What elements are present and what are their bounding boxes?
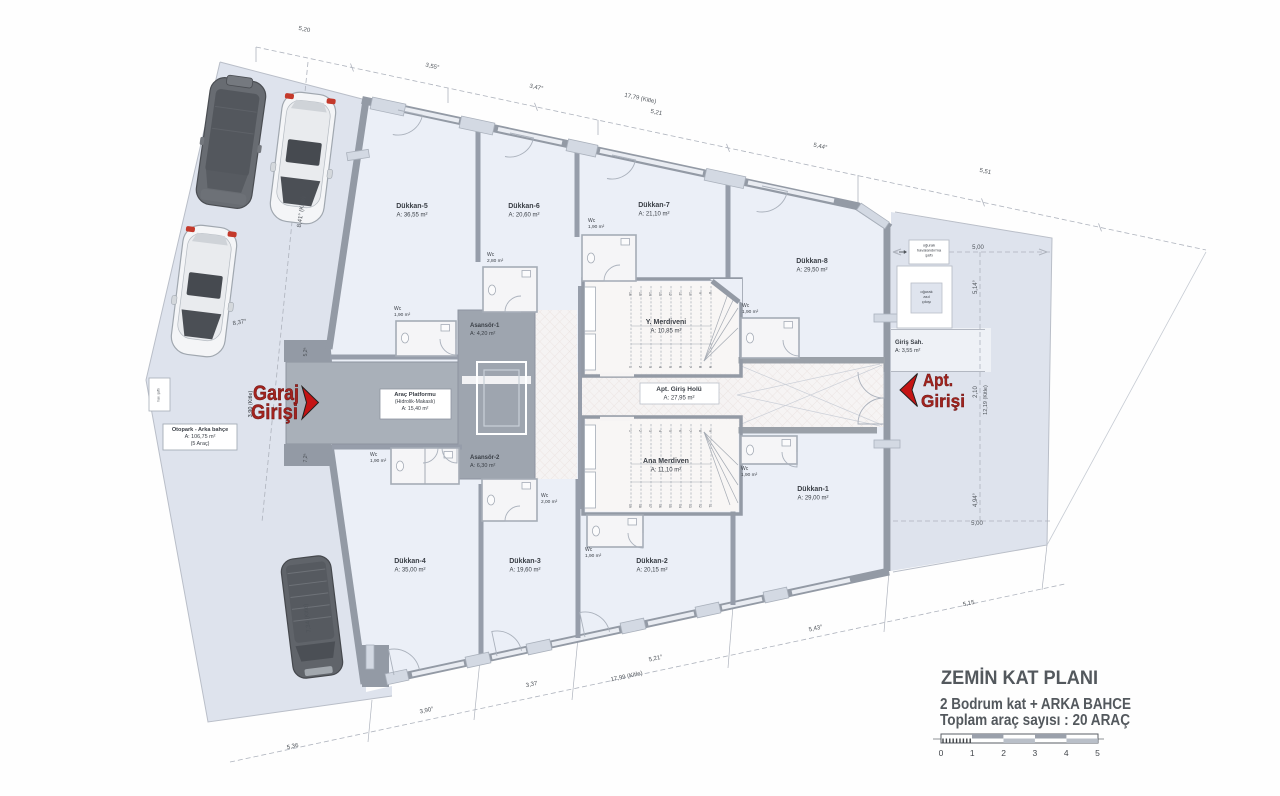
svg-text:hav. şaftı: hav. şaftı [157,388,161,402]
svg-text:Giriş Sah.: Giriş Sah. [895,340,923,346]
svg-text:Wc: Wc [741,466,749,472]
svg-text:(Hidrolik-Makaslı): (Hidrolik-Makaslı) [395,399,436,405]
svg-text:Dükkan-3: Dükkan-3 [509,558,541,565]
svg-text:A: 35,00 m²: A: 35,00 m² [394,568,425,574]
svg-text:4,94°: 4,94° [973,492,979,507]
svg-text:12: 12 [668,292,672,296]
svg-text:A: 11,10 m²: A: 11,10 m² [651,468,682,474]
svg-text:1: 1 [970,748,975,758]
svg-text:8: 8 [708,292,712,294]
svg-text:11: 11 [708,504,712,508]
svg-text:A: 29,50 m²: A: 29,50 m² [796,268,827,274]
svg-text:Wc: Wc [541,493,549,499]
svg-text:A: 36,55 m²: A: 36,55 m² [396,213,427,219]
svg-text:Dükkan-6: Dükkan-6 [508,203,540,210]
svg-text:12,19 (Kitle): 12,19 (Kitle) [983,385,989,415]
svg-text:5,14°: 5,14° [973,279,979,294]
svg-text:9: 9 [708,430,712,432]
svg-text:A: 19,60 m²: A: 19,60 m² [509,568,540,574]
svg-text:9: 9 [698,292,702,294]
svg-text:Ana Merdiven: Ana Merdiven [643,458,689,465]
svg-text:A: 20,15 m²: A: 20,15 m² [636,568,667,574]
svg-text:3: 3 [1033,748,1038,758]
svg-text:Apt.: Apt. [923,370,953,390]
svg-text:15: 15 [638,292,642,296]
svg-text:13: 13 [688,504,692,508]
svg-text:1,90 m²: 1,90 m² [742,309,759,315]
svg-text:10: 10 [688,292,692,296]
svg-text:Araç Platformu: Araç Platformu [394,392,436,398]
svg-text:Wc: Wc [588,218,596,224]
svg-text:A: 6,30 m²: A: 6,30 m² [470,463,496,469]
svg-text:çıkışı: çıkışı [922,299,931,304]
svg-text:A: 20,60 m²: A: 20,60 m² [508,213,539,219]
svg-text:1,90 m²: 1,90 m² [370,458,387,464]
svg-text:1,90 m²: 1,90 m² [741,472,758,478]
svg-text:Wc: Wc [585,547,593,553]
svg-text:7: 7 [688,366,692,368]
svg-text:11: 11 [678,292,682,296]
svg-text:1: 1 [628,366,632,368]
svg-text:2,80 m²: 2,80 m² [487,258,504,264]
svg-text:Dükkan-1: Dükkan-1 [797,486,829,493]
svg-text:Wc: Wc [370,452,378,458]
svg-text:14: 14 [678,504,682,508]
svg-text:Girişi: Girişi [251,401,298,424]
svg-text:2,10: 2,10 [973,386,979,398]
svg-text:A: 15,40 m²: A: 15,40 m² [402,406,429,412]
svg-text:9: 9 [708,366,712,368]
svg-text:Dükkan-4: Dükkan-4 [394,558,426,565]
svg-text:Wc: Wc [487,252,495,258]
svg-text:5,00: 5,00 [972,245,984,251]
svg-text:şaftı: şaftı [925,253,933,258]
svg-text:14: 14 [648,292,652,296]
svg-text:12: 12 [698,504,702,508]
svg-text:4: 4 [1064,748,1069,758]
svg-text:7,2ª: 7,2ª [303,453,309,462]
svg-text:ZEMİN KAT PLANI: ZEMİN KAT PLANI [941,666,1098,689]
svg-text:1,90 m²: 1,90 m² [588,224,605,230]
svg-text:8: 8 [698,366,702,368]
svg-text:3: 3 [648,430,652,432]
svg-text:2 Bodrum kat + ARKA BAHCE: 2 Bodrum kat + ARKA BAHCE [940,696,1131,713]
svg-text:0: 0 [939,748,944,758]
svg-text:4: 4 [658,366,662,368]
svg-text:Asansör-2: Asansör-2 [470,455,500,461]
svg-text:Wc: Wc [394,306,402,312]
svg-text:A: 10,85 m²: A: 10,85 m² [650,329,681,335]
svg-text:A: 3,55 m²: A: 3,55 m² [895,348,921,354]
svg-text:4: 4 [658,430,662,432]
svg-text:A: 27,95 m²: A: 27,95 m² [663,396,694,402]
svg-text:18: 18 [638,504,642,508]
svg-text:5,2ª: 5,2ª [303,347,309,356]
svg-text:2,00 m²: 2,00 m² [541,499,558,505]
svg-text:1,90 m²: 1,90 m² [394,312,411,318]
svg-text:7: 7 [688,430,692,432]
svg-text:16: 16 [628,292,632,296]
svg-text:13: 13 [658,292,662,296]
svg-text:Dükkan-7: Dükkan-7 [638,202,670,209]
svg-text:5,00: 5,00 [971,521,983,527]
svg-text:Y. Merdiveni: Y. Merdiveni [646,319,687,326]
svg-text:A: 4,20 m²: A: 4,20 m² [470,331,496,337]
svg-text:Dükkan-5: Dükkan-5 [396,203,428,210]
svg-text:17: 17 [648,504,652,508]
svg-text:2: 2 [1001,748,1006,758]
svg-text:Asansör-1: Asansör-1 [470,323,500,329]
svg-text:2: 2 [638,430,642,432]
svg-text:Apt. Giriş Holü: Apt. Giriş Holü [656,386,702,393]
svg-text:A: 21,10 m²: A: 21,10 m² [638,212,669,218]
svg-text:A: 29,00 m²: A: 29,00 m² [797,496,828,502]
svg-text:Otopark - Arka bahçe: Otopark - Arka bahçe [172,427,228,433]
svg-text:A: 106,75 m²: A: 106,75 m² [185,434,216,440]
svg-text:5: 5 [668,430,672,432]
svg-text:1,90 m²: 1,90 m² [585,553,602,559]
svg-text:6: 6 [678,430,682,432]
svg-text:5: 5 [1095,748,1100,758]
svg-text:16: 16 [658,504,662,508]
svg-text:Toplam araç sayısı : 20 ARAÇ: Toplam araç sayısı : 20 ARAÇ [940,712,1130,729]
svg-text:Girişi: Girişi [921,391,965,411]
svg-text:Dükkan-2: Dükkan-2 [636,558,668,565]
svg-text:2: 2 [638,366,642,368]
svg-text:5: 5 [668,366,672,368]
svg-text:15: 15 [668,504,672,508]
svg-text:19: 19 [628,504,632,508]
svg-text:3: 3 [648,366,652,368]
svg-text:1: 1 [628,430,632,432]
svg-text:8: 8 [698,430,702,432]
svg-text:Dükkan-8: Dükkan-8 [796,258,828,265]
svg-text:6: 6 [678,366,682,368]
svg-text:(5 Araç): (5 Araç) [191,441,210,447]
svg-text:Wc: Wc [742,303,750,309]
